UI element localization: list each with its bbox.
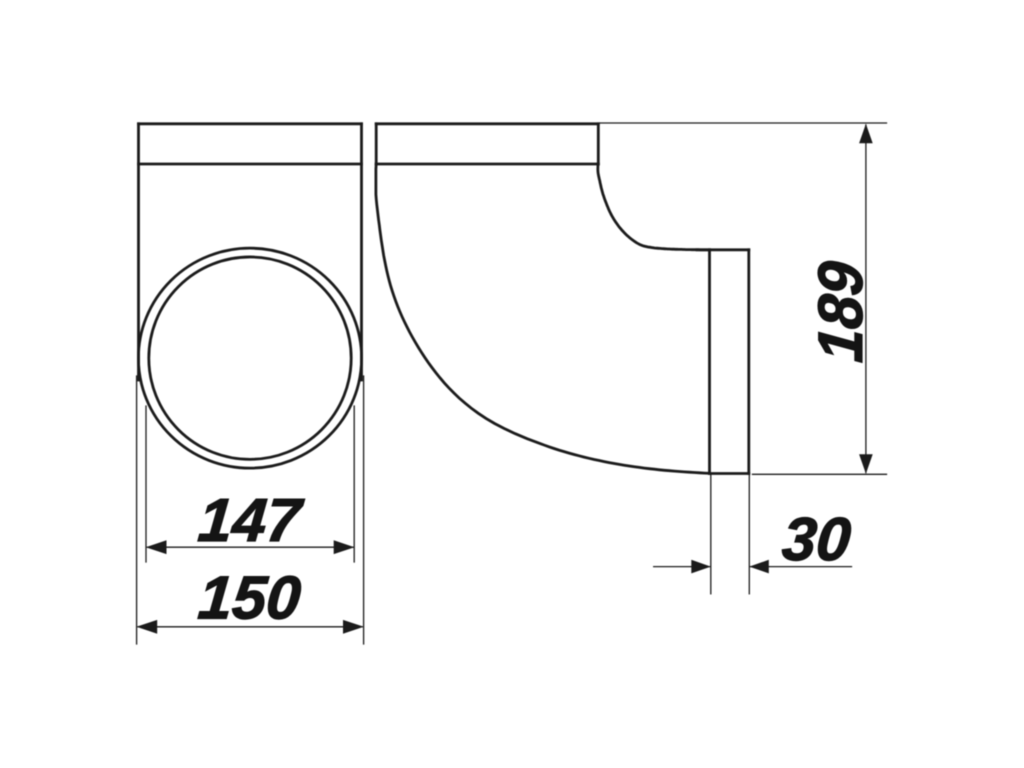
svg-text:147: 147	[196, 486, 307, 554]
svg-text:189: 189	[806, 259, 877, 365]
svg-text:150: 150	[196, 564, 304, 632]
svg-text:30: 30	[780, 505, 854, 573]
